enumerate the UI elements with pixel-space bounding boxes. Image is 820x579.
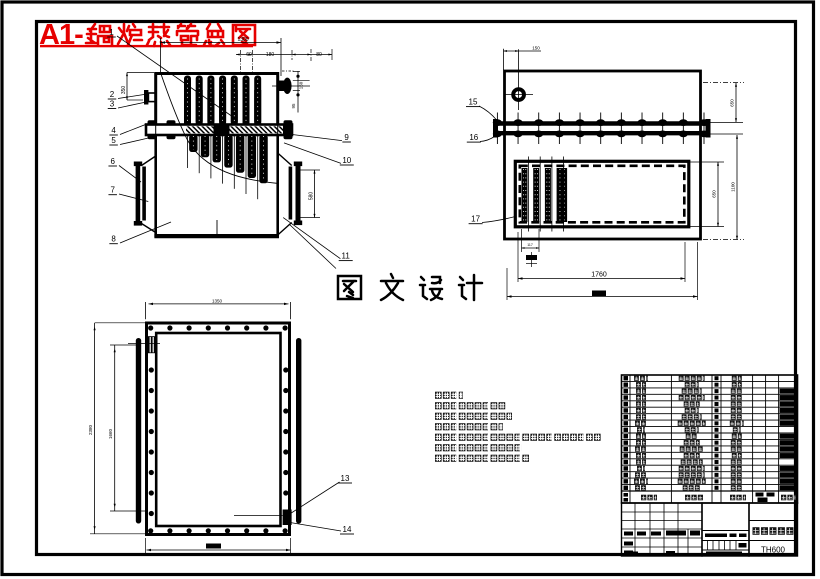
svg-text:6: 6 bbox=[110, 157, 115, 166]
svg-text:350: 350 bbox=[121, 86, 127, 95]
svg-text:13: 13 bbox=[341, 474, 350, 483]
svg-text:1660: 1660 bbox=[108, 428, 113, 439]
svg-text:1350: 1350 bbox=[212, 298, 223, 303]
svg-text:60: 60 bbox=[246, 52, 252, 58]
svg-text:2: 2 bbox=[110, 90, 115, 99]
svg-text:1300: 1300 bbox=[237, 37, 248, 43]
svg-text:4: 4 bbox=[111, 126, 116, 135]
svg-text:TH600: TH600 bbox=[761, 546, 786, 555]
svg-text:14: 14 bbox=[343, 525, 352, 534]
svg-text:3: 3 bbox=[110, 100, 115, 109]
svg-text:11: 11 bbox=[342, 252, 351, 261]
svg-text:117: 117 bbox=[527, 243, 533, 247]
svg-text:150: 150 bbox=[532, 46, 540, 51]
svg-text:7: 7 bbox=[110, 186, 115, 195]
svg-text:8: 8 bbox=[111, 235, 116, 244]
svg-text:180: 180 bbox=[266, 52, 275, 58]
svg-text:10: 10 bbox=[342, 156, 351, 165]
svg-text:95: 95 bbox=[291, 103, 296, 109]
svg-text:17: 17 bbox=[471, 215, 480, 224]
svg-text:15: 15 bbox=[469, 98, 478, 107]
svg-text:1100: 1100 bbox=[731, 182, 736, 192]
svg-text:80: 80 bbox=[316, 52, 322, 58]
svg-text:650: 650 bbox=[730, 99, 735, 107]
svg-text:580: 580 bbox=[309, 192, 315, 201]
svg-text:1: 1 bbox=[109, 28, 114, 37]
svg-text:650: 650 bbox=[712, 190, 717, 198]
svg-text:150: 150 bbox=[299, 81, 304, 89]
svg-text:16: 16 bbox=[469, 133, 478, 142]
svg-text:1760: 1760 bbox=[591, 272, 607, 279]
svg-text:9: 9 bbox=[344, 133, 349, 142]
svg-text:5: 5 bbox=[111, 136, 116, 145]
svg-text:2380: 2380 bbox=[88, 424, 93, 435]
